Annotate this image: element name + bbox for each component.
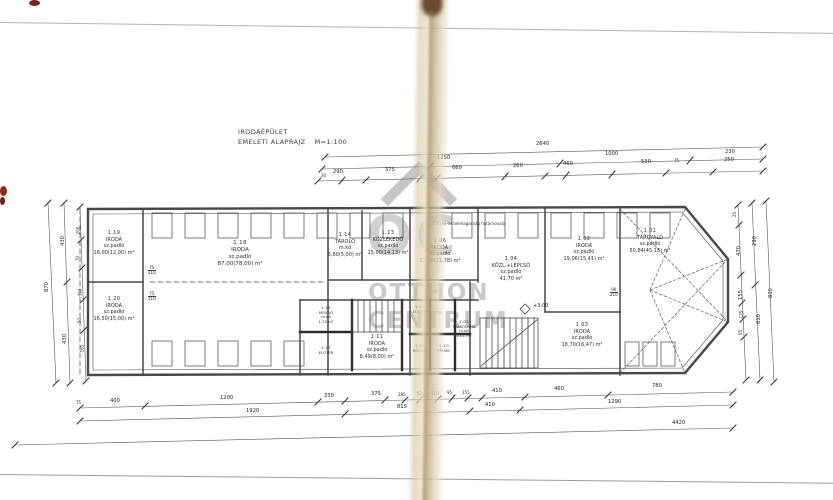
dimension-label: 1290 (608, 399, 621, 405)
title-line1: IRODAÉPÜLET (238, 128, 347, 138)
room-label-1-04: 1.04KÖZL.+LÉPCSŐsz.padló41,70 m² (492, 256, 531, 282)
dimension-label: 1920 (246, 408, 259, 414)
dimension-label: 290 (333, 169, 343, 175)
dimension-label: 50 (77, 318, 82, 323)
dimension-label: 185 (398, 392, 406, 397)
room-label-1-03: 1.03IRODAsz.padló18,70(16,47) m² (562, 322, 603, 348)
dimension-label: 610 (756, 314, 762, 324)
room-label-1-20: 1.20IRODAsz.padló16,50(15,00) m² (94, 296, 135, 322)
door-mark: 75210 (148, 292, 156, 302)
door-mark: 90210 (610, 288, 618, 298)
dimension-label: 55 (738, 330, 743, 335)
room-label-1-01: 1.01TÁRGYALÓsz.padló50,84(45,15) m² (630, 228, 671, 254)
room-label-1-19: 1.19IRODAsz.padló16,00(12,00) m² (94, 230, 135, 256)
dimension-label: 75 (76, 400, 81, 405)
dimension-label: 780 (652, 383, 662, 389)
dimension-label: 250 (724, 157, 734, 163)
dimension-label: 200 (75, 227, 80, 235)
dimension-label: 125 (738, 311, 743, 319)
dimension-label: 460 (563, 161, 573, 167)
scanned-sheet: OC OTTHON CENTRUM (0, 0, 833, 500)
dimension-label: 530 (641, 159, 651, 165)
door-mark: 75210 (148, 266, 156, 276)
dimension-label: 430 (62, 334, 68, 344)
dimension-label: 30 (321, 173, 326, 178)
room-label-1-12: 1.12MOSDÓm.kő1,70 m² (319, 306, 334, 324)
dimension-label: 2640 (536, 141, 549, 147)
room-label-1-18: 1.18IRODAsz.padló87,00(78,00) m² (217, 240, 262, 269)
room-label-1-11: 1.11IRODAsz.padló8,49(8,00) m² (360, 334, 395, 360)
dimension-label: 430 (60, 236, 66, 246)
dimension-label: 375 (371, 391, 381, 397)
dimension-label: 1000 (605, 151, 618, 157)
level-mark: +3,00 (533, 303, 548, 309)
dimension-label: 460 (554, 386, 564, 392)
dimension-label: 1200 (220, 395, 233, 401)
room-label-1-05: 1.05TEAKONYHAm.kő6,61 m² (452, 320, 475, 338)
fold-crease (407, 0, 450, 500)
dimension-label: 25 (732, 212, 737, 217)
dimension-label: 375 (385, 167, 395, 173)
room-label-1-17: 1.17ELŐTÉR (319, 346, 334, 355)
dimension-label: 4420 (672, 420, 685, 426)
drawing-title: IRODAÉPÜLET EMELETI ALAPRAJZ M=1:100 (238, 128, 347, 148)
dimension-label: 400 (110, 398, 120, 404)
ink-stain (29, 0, 40, 6)
dimension-label: 290 (752, 236, 758, 246)
dimension-label: 410 (492, 388, 502, 394)
dimension-label: 660 (452, 165, 462, 171)
ink-stain (0, 197, 5, 205)
room-label-1-13: 1.13KÖZLEKEDŐsz.padló15,00(14,13) m² (368, 230, 409, 256)
dimension-label: 230 (725, 149, 735, 155)
dimension-label: 330 (324, 393, 334, 399)
dimension-label: 410 (485, 402, 495, 408)
room-label-1-14: 1.14TÁROLÓm.kő6,60(5,00) m² (328, 232, 363, 258)
dimension-label: 835 (768, 288, 774, 298)
room-label-1-02: 1.02IRODAsz.padló19,06(15,41) m² (564, 236, 605, 262)
title-scale: M=1:100 (315, 138, 348, 148)
dimension-label: 155 (462, 390, 470, 395)
ink-stain (0, 186, 7, 196)
dimension-label: 155 (738, 290, 744, 300)
dimension-label: 70 (75, 256, 80, 261)
dimension-label: 870 (44, 282, 50, 292)
dimension-label: 75 (674, 158, 679, 163)
dimension-label: 260 (513, 163, 523, 169)
dimension-label: 95 (447, 390, 452, 395)
title-line2: EMELETI ALAPRAJZ (238, 138, 306, 148)
dimension-label: 310 (77, 289, 82, 297)
dimension-label: 165 (79, 345, 84, 353)
dimension-label: 470 (736, 246, 742, 256)
dimension-label: 815 (397, 404, 407, 410)
